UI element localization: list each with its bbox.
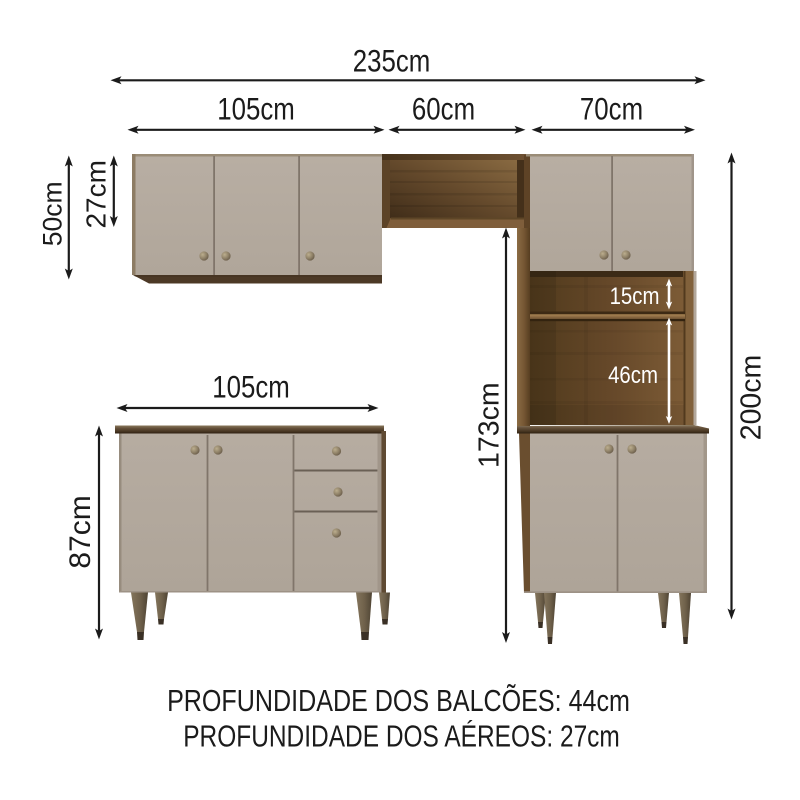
svg-text:70cm: 70cm (580, 92, 643, 127)
svg-text:15cm: 15cm (610, 282, 660, 309)
svg-text:PROFUNDIDADE DOS BALCÕES: 44cm: PROFUNDIDADE DOS BALCÕES: 44cm (167, 682, 630, 717)
svg-text:105cm: 105cm (217, 92, 295, 127)
svg-text:PROFUNDIDADE DOS AÉREOS: 27cm: PROFUNDIDADE DOS AÉREOS: 27cm (183, 719, 620, 753)
svg-text:87cm: 87cm (64, 495, 97, 568)
svg-text:173cm: 173cm (474, 382, 506, 468)
svg-text:235cm: 235cm (353, 44, 431, 79)
svg-text:105cm: 105cm (212, 370, 290, 405)
svg-text:50cm: 50cm (38, 181, 68, 246)
svg-text:60cm: 60cm (412, 92, 475, 127)
svg-text:27cm: 27cm (81, 160, 112, 228)
svg-text:46cm: 46cm (608, 361, 658, 388)
svg-text:200cm: 200cm (736, 355, 768, 441)
